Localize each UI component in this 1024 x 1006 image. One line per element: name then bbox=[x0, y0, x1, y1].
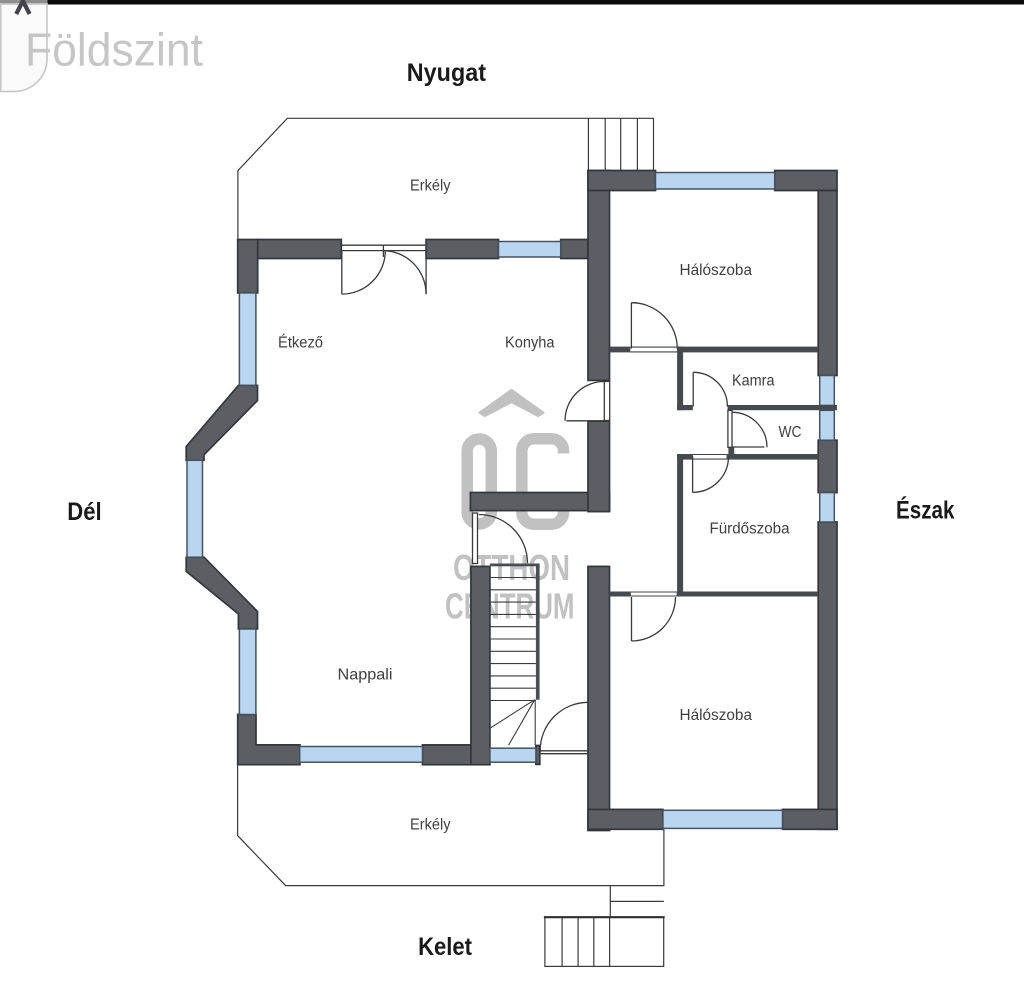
svg-text:Kelet: Kelet bbox=[418, 933, 472, 961]
svg-text:Nappali: Nappali bbox=[338, 667, 393, 684]
svg-text:Konyha: Konyha bbox=[505, 335, 555, 352]
svg-text:Földszint: Földszint bbox=[25, 24, 203, 76]
svg-text:Erkély: Erkély bbox=[410, 178, 451, 195]
svg-text:Erkély: Erkély bbox=[410, 817, 451, 834]
svg-text:Hálószoba: Hálószoba bbox=[680, 262, 753, 279]
svg-text:CENTRUM: CENTRUM bbox=[445, 586, 575, 627]
svg-text:Dél: Dél bbox=[67, 498, 101, 526]
svg-text:Észak: Észak bbox=[896, 495, 955, 524]
svg-text:Hálószoba: Hálószoba bbox=[680, 707, 753, 724]
svg-text:Nyugat: Nyugat bbox=[407, 59, 487, 87]
svg-text:Fürdőszoba: Fürdőszoba bbox=[710, 521, 790, 538]
svg-text:Kamra: Kamra bbox=[732, 373, 775, 390]
svg-text:Étkező: Étkező bbox=[278, 335, 323, 352]
svg-text:WC: WC bbox=[779, 424, 802, 441]
